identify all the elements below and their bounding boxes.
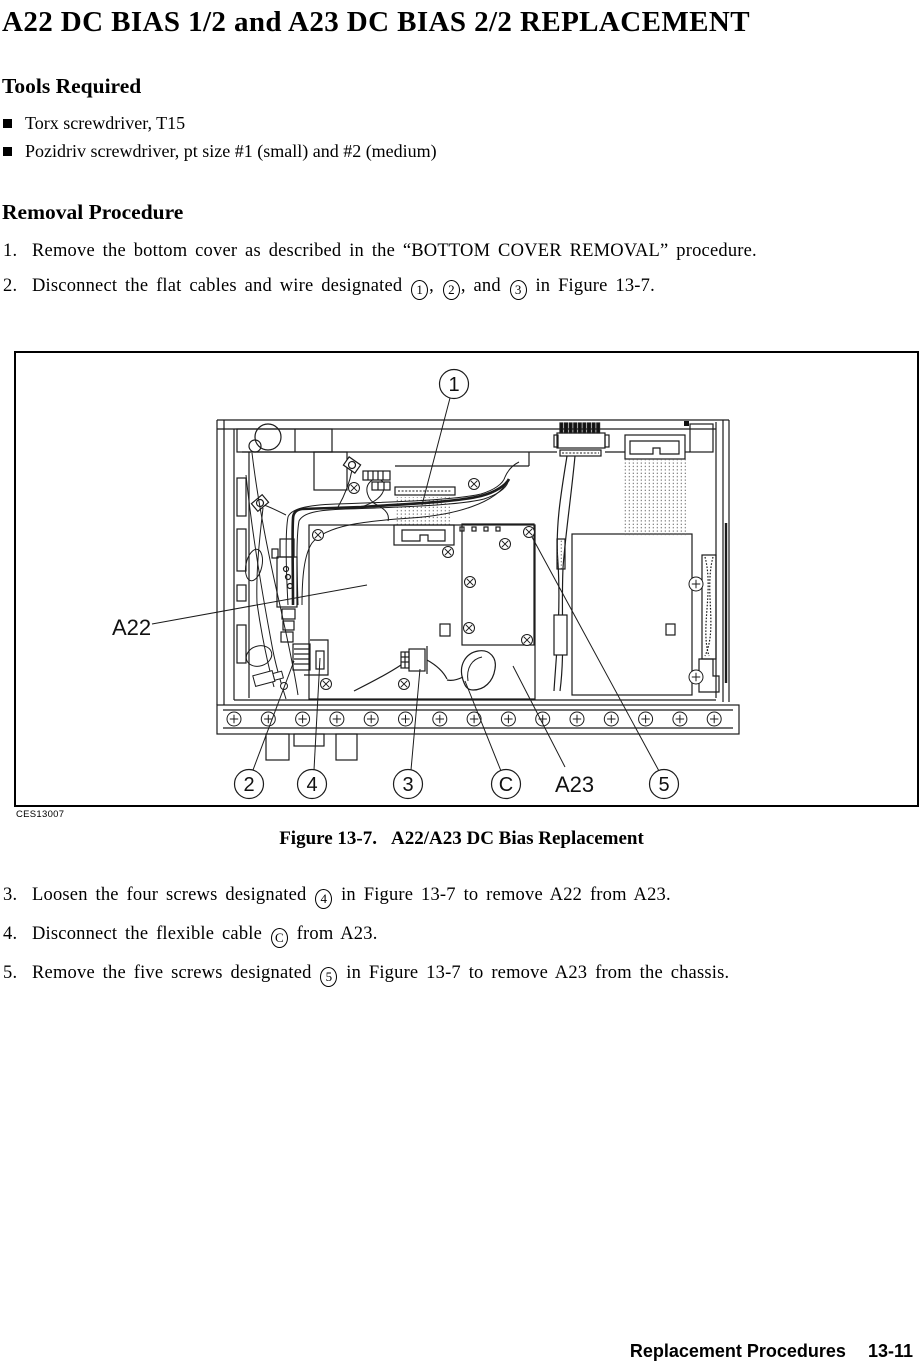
page-title: A22 DC BIAS 1/2 and A23 DC BIAS 2/2 REPL… xyxy=(2,6,902,39)
tool-item-label: Pozidriv screwdriver, pt size #1 (small)… xyxy=(25,141,437,161)
circled-ref-3: 3 xyxy=(510,280,527,300)
manual-page: { "page": { "title": "A22 DC BIAS 1/2 an… xyxy=(0,0,923,1366)
callout-5-leader xyxy=(532,537,659,771)
rail-screw-icon xyxy=(673,712,687,726)
callout-4-label: 4 xyxy=(306,774,317,796)
procedure-step: 4.Disconnect the flexible cable C from A… xyxy=(0,923,910,948)
wire-bundle xyxy=(264,462,519,605)
flat-cable-2-connector xyxy=(554,423,609,691)
procedure-step: 2.Disconnect the flat cables and wire de… xyxy=(0,275,910,300)
rail-screw-icon xyxy=(296,712,310,726)
rail-screw-icon xyxy=(227,712,241,726)
removal-steps-3-5: 3.Loosen the four screws designated 4 in… xyxy=(0,884,910,1001)
step-number: 5. xyxy=(3,962,17,984)
procedure-step: 3.Loosen the four screws designated 4 in… xyxy=(0,884,910,909)
procedure-step: 1.Remove the bottom cover as described i… xyxy=(0,240,910,262)
rail-screw-icon xyxy=(639,712,653,726)
tools-list: Torx screwdriver, T15Pozidriv screwdrive… xyxy=(0,113,910,169)
part-label-a22: A22 xyxy=(112,615,151,640)
step-text: Remove the five screws designated 5 in F… xyxy=(32,963,729,983)
removal-steps-1-2: 1.Remove the bottom cover as described i… xyxy=(0,240,910,313)
footer-page-number: 13-11 xyxy=(868,1341,913,1361)
rail-screw-icon xyxy=(707,712,721,726)
circled-ref-4: 4 xyxy=(315,889,332,909)
rail-screw-icon xyxy=(604,712,618,726)
step-number: 1. xyxy=(3,240,17,262)
rail-screw-icon xyxy=(570,712,584,726)
figure-caption: Figure 13-7.A22/A23 DC Bias Replacement xyxy=(0,828,923,850)
tools-heading: Tools Required xyxy=(2,74,141,99)
tool-item-label: Torx screwdriver, T15 xyxy=(25,113,185,133)
rail-screw-icon xyxy=(330,712,344,726)
bullet-square-icon xyxy=(3,147,12,156)
callout-C-leader xyxy=(465,681,501,771)
rail-screw-icon xyxy=(501,712,515,726)
step-text: Remove the bottom cover as described in … xyxy=(32,241,757,261)
figure-image-code: CES13007 xyxy=(16,809,64,820)
step-text: Loosen the four screws designated 4 in F… xyxy=(32,885,671,905)
step-number: 3. xyxy=(3,884,17,906)
removal-heading: Removal Procedure xyxy=(2,200,183,225)
circled-ref-2: 2 xyxy=(443,280,460,300)
figure-13-7-drawing: 1243C5A22A23 xyxy=(16,353,917,805)
callout-1-label: 1 xyxy=(448,374,459,396)
figure-13-7: 1243C5A22A23 xyxy=(14,351,919,807)
step-text: Disconnect the flexible cable C from A23… xyxy=(32,924,378,944)
figure-caption-label: Figure 13-7. xyxy=(279,828,377,849)
page-footer: Replacement Procedures13-11 xyxy=(630,1341,913,1362)
tool-item: Pozidriv screwdriver, pt size #1 (small)… xyxy=(0,141,910,161)
callout-2-label: 2 xyxy=(243,774,254,796)
bullet-square-icon xyxy=(3,119,12,128)
circled-ref-5: 5 xyxy=(320,967,337,987)
rail-screw-icon xyxy=(433,712,447,726)
part-label-a23-leader xyxy=(513,666,565,767)
rail-screws xyxy=(227,712,721,726)
rail-screw-icon xyxy=(261,712,275,726)
tool-item: Torx screwdriver, T15 xyxy=(0,113,910,133)
circled-ref-C: C xyxy=(271,928,288,948)
part-label-a23: A23 xyxy=(555,772,594,797)
callout-3-label: 3 xyxy=(402,774,413,796)
rail-screw-icon xyxy=(364,712,378,726)
callout-C-label: C xyxy=(499,774,513,796)
step-number: 2. xyxy=(3,275,17,297)
ribbon-cable-right xyxy=(624,421,689,537)
step-number: 4. xyxy=(3,923,17,945)
callout-5-label: 5 xyxy=(658,774,669,796)
footer-section: Replacement Procedures xyxy=(630,1341,846,1361)
circled-ref-1: 1 xyxy=(411,280,428,300)
figure-caption-title: A22/A23 DC Bias Replacement xyxy=(391,828,644,849)
procedure-step: 5.Remove the five screws designated 5 in… xyxy=(0,962,910,987)
rail-screw-icon xyxy=(399,712,413,726)
rail-screw-icon xyxy=(467,712,481,726)
flex-cable-c xyxy=(447,651,495,690)
step-text: Disconnect the flat cables and wire desi… xyxy=(32,276,655,296)
